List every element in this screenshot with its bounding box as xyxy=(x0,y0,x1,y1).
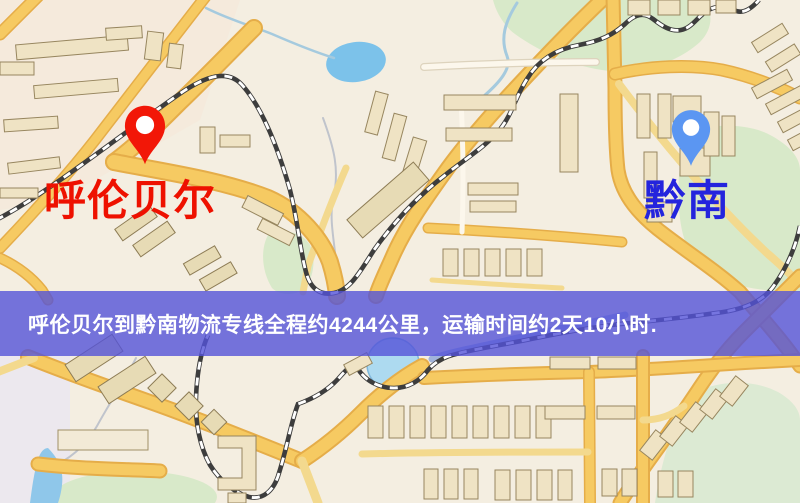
destination-pin-icon xyxy=(671,108,711,168)
logistics-route-map: 呼伦贝尔 黔南 呼伦贝尔到黔南物流专线全程约4244公里，运输时间约2天10小时… xyxy=(0,0,800,503)
map-background xyxy=(0,0,800,503)
route-summary-banner: 呼伦贝尔到黔南物流专线全程约4244公里，运输时间约2天10小时. xyxy=(0,291,800,356)
origin-pin-icon xyxy=(124,102,166,168)
destination-label: 黔南 xyxy=(637,180,737,222)
origin-label: 呼伦贝尔 xyxy=(30,180,230,222)
route-summary-text: 呼伦贝尔到黔南物流专线全程约4244公里，运输时间约2天10小时. xyxy=(28,309,657,339)
